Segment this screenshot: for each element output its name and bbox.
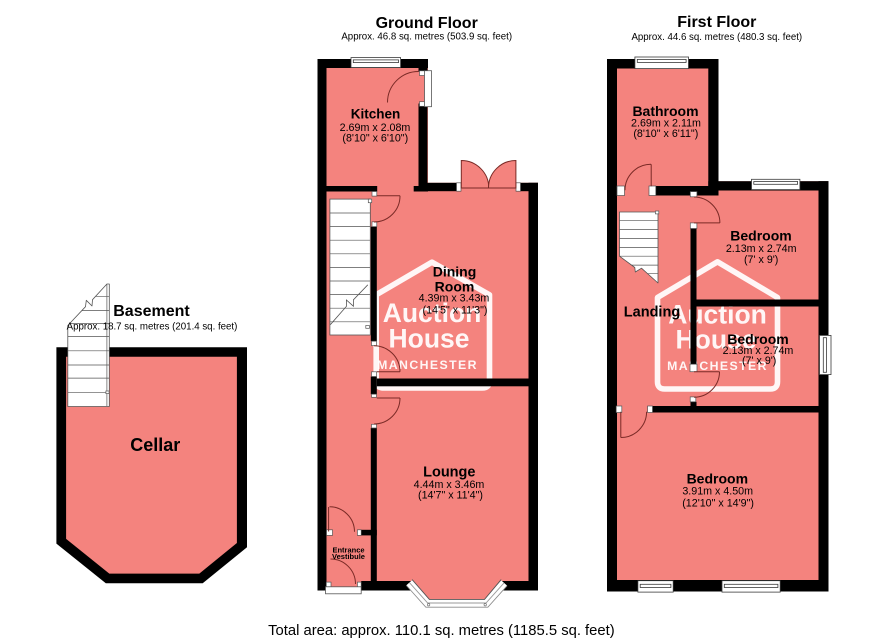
svg-text:Cellar: Cellar — [130, 435, 180, 455]
svg-text:Total area: approx. 110.1 sq.: Total area: approx. 110.1 sq. metres (11… — [268, 623, 615, 639]
svg-text:House: House — [389, 324, 470, 354]
svg-text:Bedroom: Bedroom — [730, 228, 791, 244]
svg-text:Landing: Landing — [624, 305, 680, 321]
svg-text:(12'10" x 14'9"): (12'10" x 14'9") — [682, 497, 754, 509]
svg-text:(7' x 9'): (7' x 9') — [744, 254, 778, 266]
svg-text:Approx. 46.8 sq. metres (503.9: Approx. 46.8 sq. metres (503.9 sq. feet) — [341, 32, 512, 43]
svg-text:Approx. 44.6 sq. metres (480.3: Approx. 44.6 sq. metres (480.3 sq. feet) — [631, 32, 802, 43]
svg-text:Basement: Basement — [113, 303, 190, 320]
svg-text:MANCHESTER: MANCHESTER — [377, 358, 478, 372]
svg-text:Lounge: Lounge — [423, 464, 475, 480]
svg-text:Ground Floor: Ground Floor — [376, 15, 478, 32]
svg-text:Kitchen: Kitchen — [351, 106, 401, 121]
svg-text:3.91m x 4.50m: 3.91m x 4.50m — [682, 486, 753, 498]
svg-text:(14'5" x 11'3"): (14'5" x 11'3") — [423, 305, 488, 317]
svg-text:(8'10" x 6'11"): (8'10" x 6'11") — [633, 128, 698, 140]
svg-text:4.39m x 3.43m: 4.39m x 3.43m — [419, 293, 490, 305]
svg-text:Vestibule: Vestibule — [332, 552, 365, 561]
svg-text:Bedroom: Bedroom — [687, 471, 748, 487]
svg-text:(7' x 9'): (7' x 9') — [742, 355, 776, 367]
svg-text:(14'7" x 11'4"): (14'7" x 11'4") — [418, 489, 483, 501]
svg-text:Approx. 18.7 sq. metres (201.4: Approx. 18.7 sq. metres (201.4 sq. feet) — [67, 322, 238, 333]
svg-text:(8'10" x 6'10"): (8'10" x 6'10") — [342, 133, 408, 145]
svg-text:Dining: Dining — [433, 264, 477, 280]
svg-text:First Floor: First Floor — [677, 14, 756, 31]
